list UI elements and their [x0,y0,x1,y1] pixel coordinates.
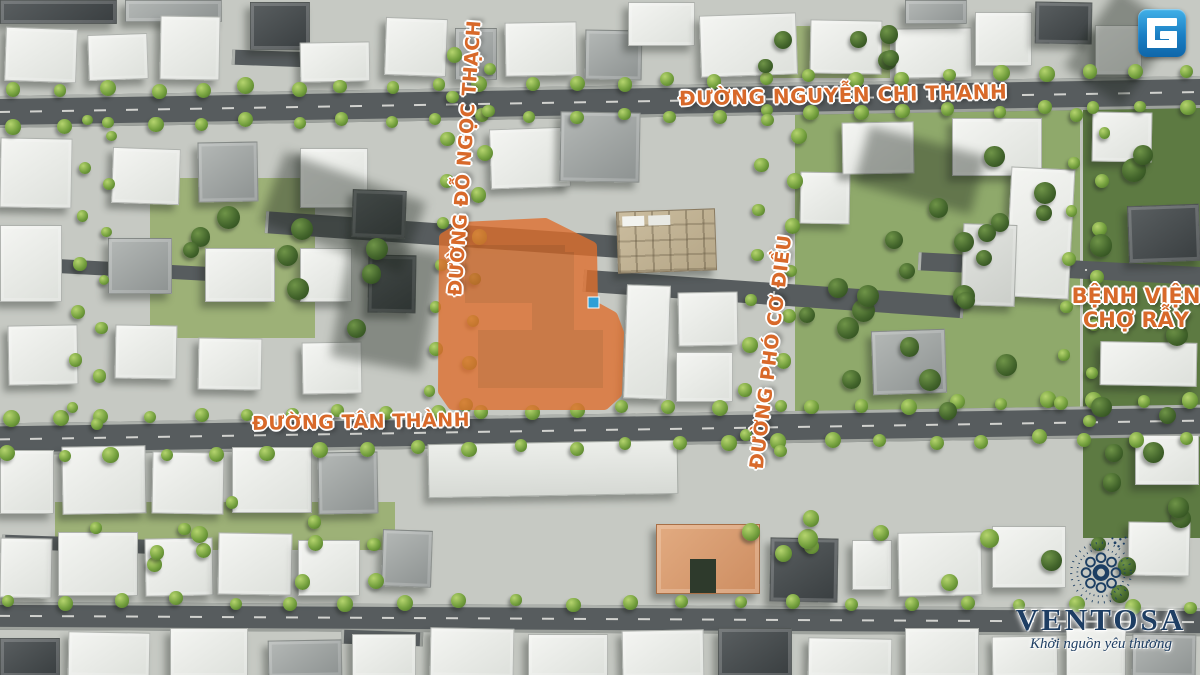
tree [283,597,297,611]
building [0,225,62,302]
tree [451,593,466,608]
tree [929,198,949,218]
building [170,628,248,675]
tree [429,342,442,355]
ventosa-tagline: Khởi nguồn yêu thương [995,636,1200,653]
tree [69,353,83,367]
tree [387,81,400,94]
tree [150,545,164,559]
tree [77,210,88,221]
tree [774,445,787,458]
tree [570,442,584,456]
tree [1168,497,1188,517]
building [623,284,671,399]
tree [1105,444,1123,462]
tree [1090,234,1113,257]
hospital-label-line2: CHỢ RẪY [1046,308,1200,332]
tree [899,263,915,279]
tree [663,111,675,123]
tree [1034,182,1056,204]
building [352,634,416,675]
tree [1070,108,1083,121]
building [108,238,172,294]
building [800,172,851,225]
building [808,637,893,675]
tree [102,447,118,463]
tree [333,80,346,93]
tree [957,292,975,310]
building [905,628,979,675]
tree [850,31,867,48]
tree [308,535,323,550]
tree [738,383,751,396]
tree [900,337,919,356]
tree [754,158,769,173]
tree [623,595,638,610]
tree [1066,205,1078,217]
tree [217,206,240,229]
tree [661,400,675,414]
tree [660,72,674,86]
ventosa-watermark: VENTOSA Khởi nguồn yêu thương [995,534,1200,653]
tree [3,410,20,427]
tree [148,117,164,133]
tree [525,405,540,420]
tree [95,322,108,335]
tree [618,108,631,121]
tree [1182,392,1199,409]
building [217,532,292,595]
tree [5,119,20,134]
tree [803,510,819,526]
tree [752,204,765,217]
tree [566,598,580,612]
tree [461,442,476,457]
building [159,15,220,80]
tree [1077,433,1090,446]
tree [919,369,941,391]
tree [308,515,321,528]
tree [941,574,958,591]
tree [751,249,763,261]
construction-building [616,208,717,273]
building [58,532,138,596]
tree [742,337,758,353]
building [300,41,371,82]
tree [523,111,535,123]
building-shadow [330,238,441,372]
tree [1083,64,1098,79]
tree [195,118,208,131]
tree [472,229,487,244]
tree [786,594,801,609]
tree [1128,64,1143,79]
road [232,49,310,67]
tree [115,593,130,608]
tree [1180,100,1196,116]
tree [433,78,445,90]
tree [469,273,481,285]
tree [102,117,114,129]
tree [54,84,66,96]
hospital-label: BỆNH VIỆN CHỢ RẪY [1046,284,1200,332]
tree [90,522,101,533]
tree [312,442,328,458]
tree [1103,473,1122,492]
g-logo [1138,9,1186,57]
tree [758,59,772,73]
building [528,634,608,675]
tree [618,77,632,91]
tree [845,598,858,611]
tree [424,385,435,396]
tree [713,110,727,124]
tree [873,434,887,448]
tree [673,436,687,450]
tree [615,400,628,413]
building [317,451,378,514]
tree [226,496,238,508]
tree [1058,349,1069,360]
tree [1134,101,1145,112]
tree [742,523,760,541]
building [381,529,433,588]
building [87,33,149,81]
tree [775,400,787,412]
tree [526,77,540,91]
tree [761,114,774,127]
tree [467,315,479,327]
tree [857,285,879,307]
tree [825,432,841,448]
tree [295,574,311,590]
building [0,137,73,208]
tree [802,69,815,82]
building [111,147,181,205]
ventosa-wordmark: VENTOSA [995,602,1200,638]
tree [367,538,380,551]
tree [996,354,1017,375]
tree [440,132,455,147]
tree [144,411,156,423]
tree [787,173,803,189]
tree [238,112,253,127]
tree [430,301,441,312]
tree [854,105,869,120]
tree [368,573,384,589]
tree [57,119,72,134]
building [718,628,792,675]
tree [883,50,899,66]
tree [53,410,69,426]
tree [292,82,307,97]
building [1127,204,1200,263]
tree [842,370,861,389]
tree [362,264,381,283]
tree [1143,442,1164,463]
tree [721,435,737,451]
tree [71,305,85,319]
tree [82,115,93,126]
tree [791,128,807,144]
tree [101,227,111,237]
building [430,627,515,675]
building [384,17,448,77]
tree [1138,395,1151,408]
street-label-tan-thanh: ĐƯỜNG TÂN THÀNH [241,409,481,435]
tree [954,232,974,252]
tree [366,238,388,260]
tree [259,446,275,462]
building [7,324,78,385]
tree [984,146,1005,167]
tree [169,591,183,605]
tree [411,440,425,454]
tree [978,224,996,242]
tree [855,399,868,412]
tree [1090,270,1104,284]
building [198,337,263,390]
tree [1062,252,1076,266]
building [678,291,739,346]
tree [939,402,957,420]
tree [515,439,527,451]
tree [335,112,348,125]
building [810,19,883,74]
tree [191,526,208,543]
tree [1099,127,1110,138]
tree [79,162,91,174]
building [205,248,275,302]
tree [178,523,191,536]
g-letter-icon [1138,9,1186,57]
tree [360,442,375,457]
tree [828,278,848,298]
building [68,631,151,675]
ventosa-emblem-icon [1057,534,1145,606]
tree [798,529,818,549]
tree [91,418,103,430]
tree [895,104,909,118]
hospital-label-line1: BỆNH VIỆN [1046,284,1200,308]
building [895,27,973,78]
tree [675,595,688,608]
tree [397,595,413,611]
building [676,352,733,402]
tree [760,72,773,85]
tree [93,369,106,382]
tree [510,594,521,605]
building [197,141,258,202]
building [0,538,53,599]
tree [347,319,366,338]
tree [294,117,306,129]
tree [277,245,298,266]
tree [1095,174,1109,188]
building [505,21,578,76]
tree [799,307,815,323]
tree [462,356,477,371]
tree [1091,397,1112,418]
tree [943,69,956,82]
tree [885,231,903,249]
tree [837,317,859,339]
tree [1032,429,1047,444]
tree [429,113,441,125]
tree [804,400,819,415]
tree [873,525,889,541]
tree [905,597,919,611]
building [905,0,967,24]
building [622,629,705,675]
building [4,27,78,83]
building [628,2,695,46]
tree [785,218,800,233]
building [852,540,892,590]
building [1100,341,1198,387]
tree [161,449,173,461]
tree [195,408,209,422]
building [0,638,60,675]
tree [735,596,747,608]
tree [619,437,632,450]
tree [974,435,988,449]
tree [1129,432,1144,447]
building [975,12,1032,66]
building [0,0,117,24]
tree [1087,101,1099,113]
building [268,639,343,675]
tree [477,145,493,161]
tree [1086,367,1098,379]
tree [67,402,78,413]
aerial-map: ĐƯỜNG NGUYỄN CHI THANH ĐƯỜNG ĐỖ NGỌC THẠ… [0,0,1200,675]
tree [880,25,898,43]
tree [106,131,116,141]
building [115,324,178,379]
tree [183,242,199,258]
tree [930,436,944,450]
tree [58,596,73,611]
tree [73,257,86,270]
tree [152,84,166,98]
tree [994,106,1005,117]
tree [1036,205,1052,221]
tree [196,543,211,558]
building [897,531,982,596]
tree [386,116,398,128]
tree [1083,415,1096,428]
tree [745,294,756,305]
tree [1068,157,1079,168]
tree [484,63,496,75]
